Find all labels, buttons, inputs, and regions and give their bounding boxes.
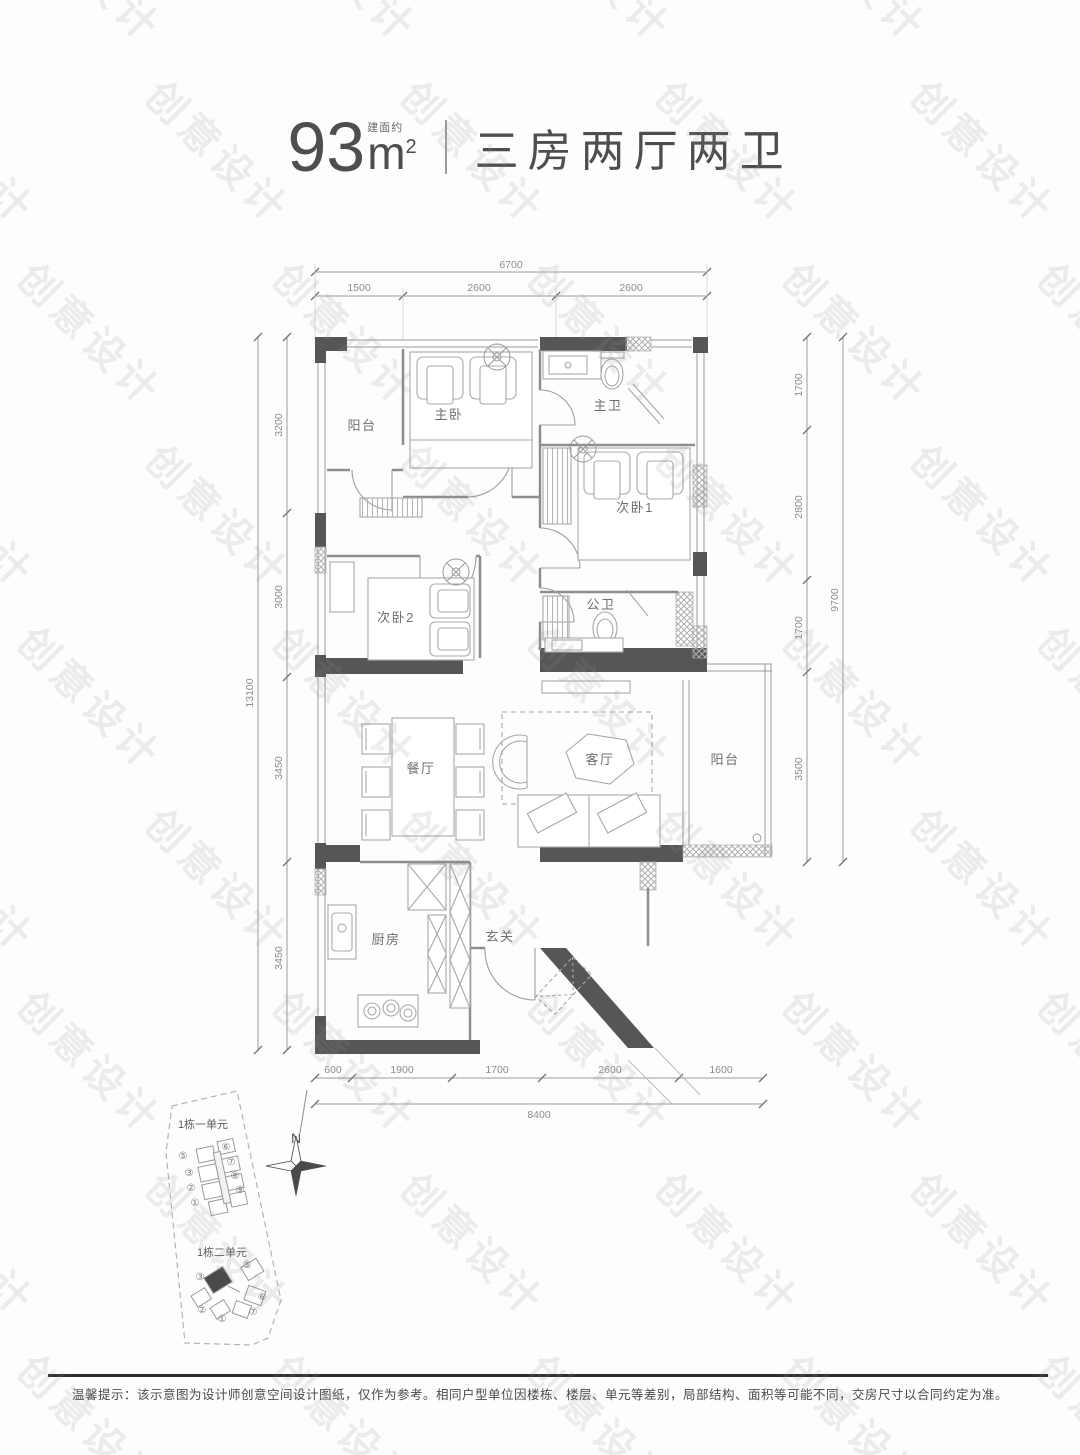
dim-left-seg4: 3450 [273, 946, 285, 970]
dim-left-seg2: 3000 [273, 585, 285, 609]
room-label-public-bath: 公卫 [586, 597, 615, 612]
dim-top-seg3: 2600 [619, 282, 643, 294]
unit-number: ⑥ [222, 1142, 231, 1153]
title-bar: 93 建面约 m2 三房两厅两卫 [0, 112, 1080, 182]
highlighted-unit [204, 1267, 232, 1294]
room-label-kitchen: 厨房 [371, 932, 400, 947]
unit-number: ⑧ [231, 1171, 240, 1182]
dim-right-seg1: 1700 [793, 373, 805, 397]
area-unit: m2 [367, 131, 416, 175]
unit-number: ③ [185, 1168, 194, 1179]
dim-left-seg3: 3450 [273, 756, 285, 780]
area-unit-letter: m [367, 127, 405, 179]
footer-divider [48, 1374, 1048, 1377]
room-label-master-bath: 主卫 [593, 398, 622, 413]
dim-right-seg2: 2800 [793, 495, 805, 519]
unit-number: ② [198, 1305, 207, 1316]
area-unit-sup: 2 [406, 136, 417, 158]
siteplan-building1-label: 1栋一单元 [178, 1117, 228, 1131]
dim-top-total: 6700 [499, 259, 523, 271]
unit-number: ① [218, 1314, 227, 1325]
floor-plan: 6700 1500 2600 2600 600 1900 1700 2600 1… [0, 0, 1080, 1455]
room-label-foyer: 玄关 [485, 929, 514, 944]
room-label-living: 客厅 [585, 752, 614, 767]
unit-number: ⑨ [236, 1185, 245, 1196]
room-label-dining: 餐厅 [406, 761, 435, 776]
dim-bottom-seg5: 1600 [709, 1064, 733, 1076]
dim-bottom-seg3: 1700 [485, 1064, 509, 1076]
room-label-balcony-right: 阳台 [710, 752, 739, 767]
room-label-balcony-top: 阳台 [347, 418, 376, 433]
dim-right-seg3: 1700 [793, 616, 805, 640]
furniture [328, 351, 690, 1027]
unit-number: ⑤ [243, 1260, 252, 1271]
area-number: 93 [287, 112, 365, 182]
title-divider [445, 120, 447, 174]
dim-left-total: 13100 [244, 678, 256, 707]
dim-top-seg1: 1500 [347, 282, 371, 294]
room-label-master-bedroom: 主卧 [434, 407, 463, 422]
unit-number: ⑤ [179, 1151, 188, 1162]
dim-bottom-seg4: 2600 [598, 1064, 622, 1076]
dim-left-seg1: 3200 [273, 413, 285, 437]
disclaimer-text: 温馨提示：该示意图为设计师创意空间设计图纸，仅作为参考。相同户型单位因楼栋、楼层… [0, 1384, 1080, 1403]
dim-bottom-total: 8400 [527, 1109, 551, 1121]
unit-number: ③ [196, 1272, 205, 1283]
area-unit-stack: 建面约 m2 [367, 119, 416, 175]
unit-number: ⑦ [227, 1157, 236, 1168]
site-plan: 1栋一单元 ⑤ ③ ② ① ⑥ ⑦ ⑧ ⑨ 1栋二单元 [166, 1091, 281, 1345]
unit-number: ② [187, 1183, 196, 1194]
room-label-bedroom2: 次卧2 [377, 610, 415, 625]
siteplan-building2-label: 1栋二单元 [197, 1245, 247, 1259]
north-arrow-icon: N [266, 1090, 326, 1196]
unit-number: ⑦ [249, 1307, 258, 1318]
layout-title: 三房两厅两卫 [475, 115, 793, 179]
dim-right-seg4: 3500 [793, 757, 805, 781]
dim-top-seg2: 2600 [467, 282, 491, 294]
unit-number: ⑥ [258, 1292, 267, 1303]
room-label-bedroom1: 次卧1 [616, 500, 654, 515]
dim-bottom-seg2: 1900 [390, 1064, 414, 1076]
unit-number: ① [191, 1198, 200, 1209]
dim-right-total: 9700 [829, 588, 841, 612]
dim-bottom-seg1: 600 [324, 1064, 342, 1076]
